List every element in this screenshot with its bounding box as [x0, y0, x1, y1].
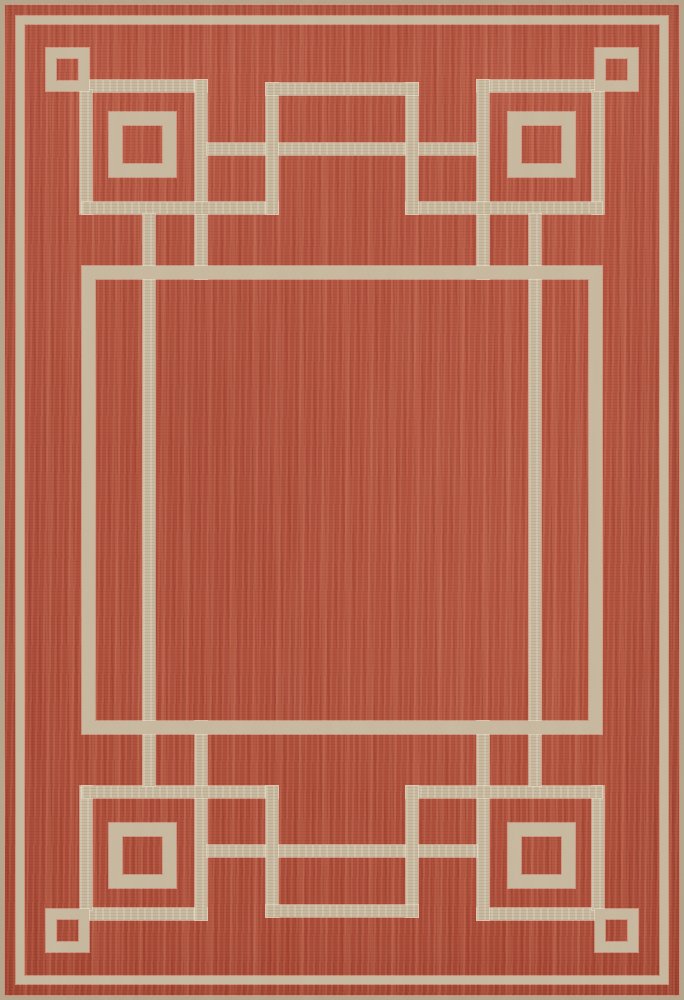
corner-large-square-br	[508, 823, 575, 888]
corner-large-square-tr	[508, 112, 575, 177]
corner-small-square-bl	[46, 909, 89, 952]
corner-small-square-tl	[46, 48, 89, 91]
inner-field-frame	[82, 266, 602, 734]
corner-small-square-tr	[595, 48, 638, 91]
corner-small-square-br	[595, 909, 638, 952]
rug	[0, 0, 684, 1000]
rug-product-photo	[0, 0, 684, 1000]
corner-large-square-tl	[109, 112, 176, 177]
corner-large-square-bl	[109, 823, 176, 888]
